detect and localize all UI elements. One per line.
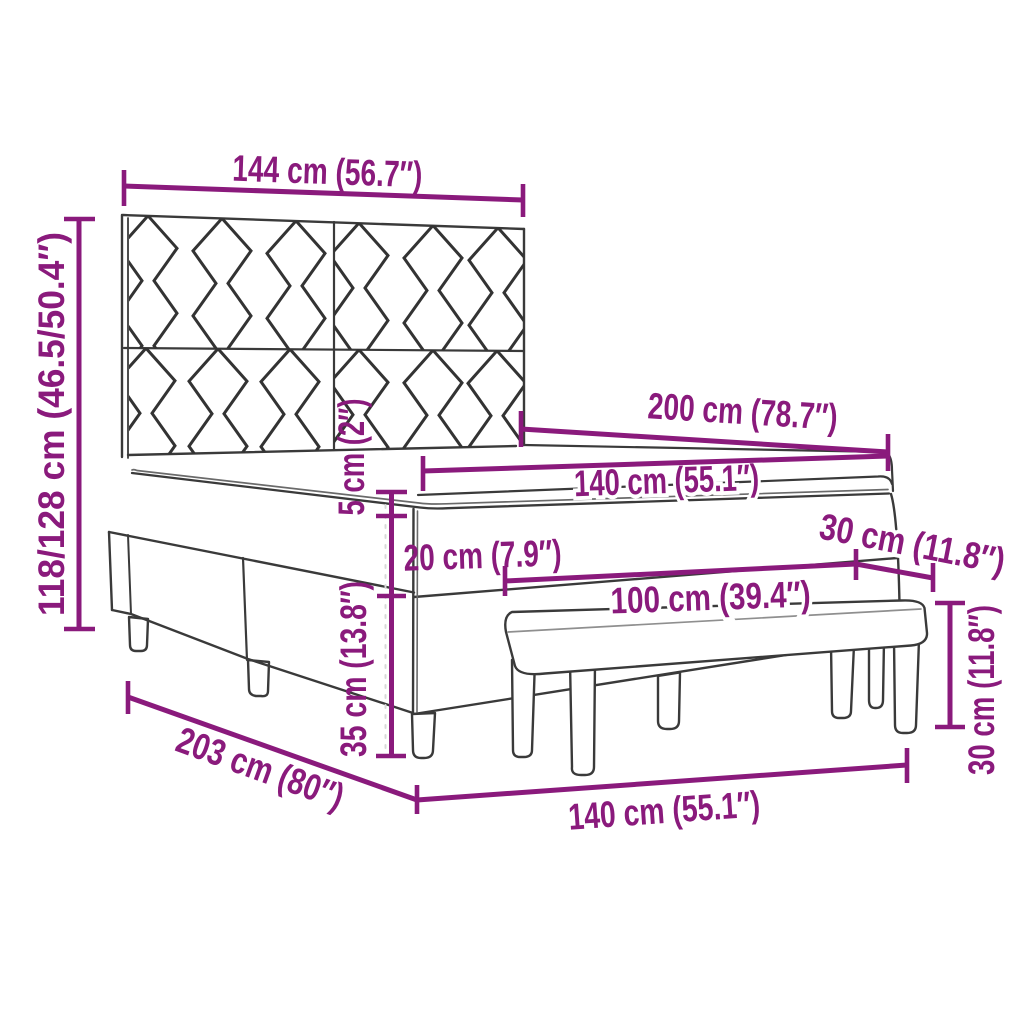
svg-text:203 cm (80″): 203 cm (80″) — [171, 719, 349, 817]
svg-text:100 cm (39.4″): 100 cm (39.4″) — [610, 574, 811, 622]
svg-text:35 cm (13.8″): 35 cm (13.8″) — [333, 581, 374, 757]
svg-text:20 cm (7.9″): 20 cm (7.9″) — [403, 532, 562, 578]
svg-text:5 cm (2″): 5 cm (2″) — [331, 399, 372, 516]
svg-text:30 cm (11.8″): 30 cm (11.8″) — [816, 506, 1008, 582]
svg-text:118/128 cm (46.5/50.4″): 118/128 cm (46.5/50.4″) — [31, 232, 72, 616]
svg-text:140 cm (55.1″): 140 cm (55.1″) — [567, 783, 761, 837]
svg-text:200 cm (78.7″): 200 cm (78.7″) — [647, 385, 839, 438]
svg-text:144 cm (56.7″): 144 cm (56.7″) — [232, 148, 423, 196]
svg-text:30 cm (11.8″): 30 cm (11.8″) — [961, 605, 1002, 775]
